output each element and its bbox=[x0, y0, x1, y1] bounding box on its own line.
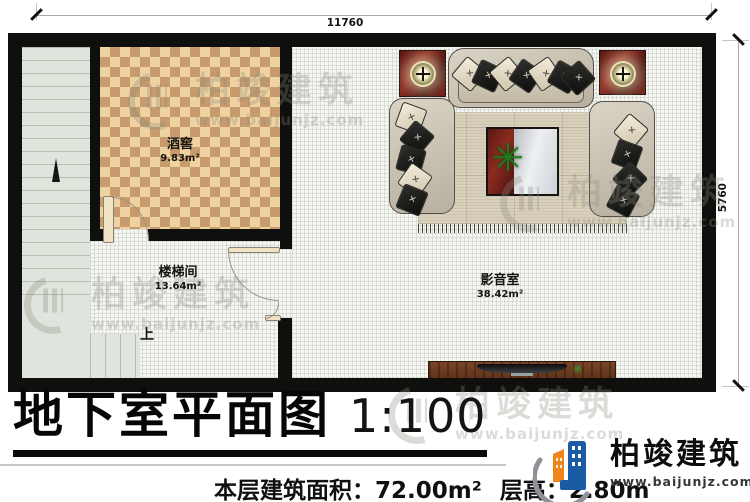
wall-cellar-south-b bbox=[148, 229, 292, 241]
speaker-rug-right bbox=[599, 50, 646, 95]
stair-up-label: 上 bbox=[140, 324, 154, 344]
floorplan-sheet: 11760 5760 bbox=[0, 0, 750, 502]
staircase bbox=[22, 47, 90, 378]
extension-line bbox=[722, 386, 749, 387]
room-label-wine-cellar: 酒窖 9.83m² bbox=[130, 138, 230, 164]
stair-direction-arrow-icon bbox=[52, 158, 60, 182]
title-underline bbox=[13, 450, 487, 457]
stair-winders bbox=[90, 334, 140, 378]
brand-name: 柏竣建筑 bbox=[610, 438, 750, 471]
wall-left bbox=[8, 33, 22, 392]
room-label-stairwell: 楼梯间 13.64m² bbox=[128, 266, 228, 292]
rug-fringe bbox=[418, 224, 627, 233]
downlight-icon bbox=[610, 61, 636, 87]
brand-logo-icon bbox=[533, 436, 605, 502]
tv-stand bbox=[511, 373, 533, 376]
wall-stairs-cellar bbox=[90, 47, 100, 241]
extension-line bbox=[722, 40, 749, 41]
tv-icon bbox=[477, 364, 567, 373]
drawing-scale: 1:100 bbox=[349, 389, 487, 443]
drawing-title: 地下室平面图 bbox=[13, 387, 331, 445]
wall-cellar-east bbox=[280, 47, 292, 249]
wall-cellar-south-a bbox=[90, 229, 104, 241]
downlight-icon bbox=[410, 61, 436, 87]
top-dimension-line bbox=[36, 15, 711, 16]
speaker-rug-left bbox=[399, 50, 446, 97]
brand-website: www.baijunjz.com bbox=[610, 474, 750, 489]
sofa-left bbox=[389, 98, 455, 214]
plant-icon: ✳ bbox=[488, 138, 528, 178]
right-dimension-line bbox=[738, 40, 739, 386]
small-plant-icon: ❋ bbox=[573, 363, 582, 377]
title-block: 地下室平面图 1:100 bbox=[13, 387, 487, 445]
wall-top bbox=[8, 33, 716, 47]
floor-area-text: 本层建筑面积：72.00m² bbox=[214, 478, 482, 502]
divider-rule bbox=[0, 464, 506, 466]
wall-stairwell-east bbox=[278, 318, 292, 378]
top-dimension-label: 11760 bbox=[305, 17, 385, 29]
sofa-back bbox=[448, 48, 594, 108]
sofa-right bbox=[589, 101, 655, 217]
brand-logo: 柏竣建筑 www.baijunjz.com bbox=[533, 422, 750, 502]
wall-right bbox=[702, 33, 716, 392]
room-label-media-room: 影音室 38.42m² bbox=[450, 274, 550, 300]
right-dimension-label: 5760 bbox=[717, 183, 729, 212]
